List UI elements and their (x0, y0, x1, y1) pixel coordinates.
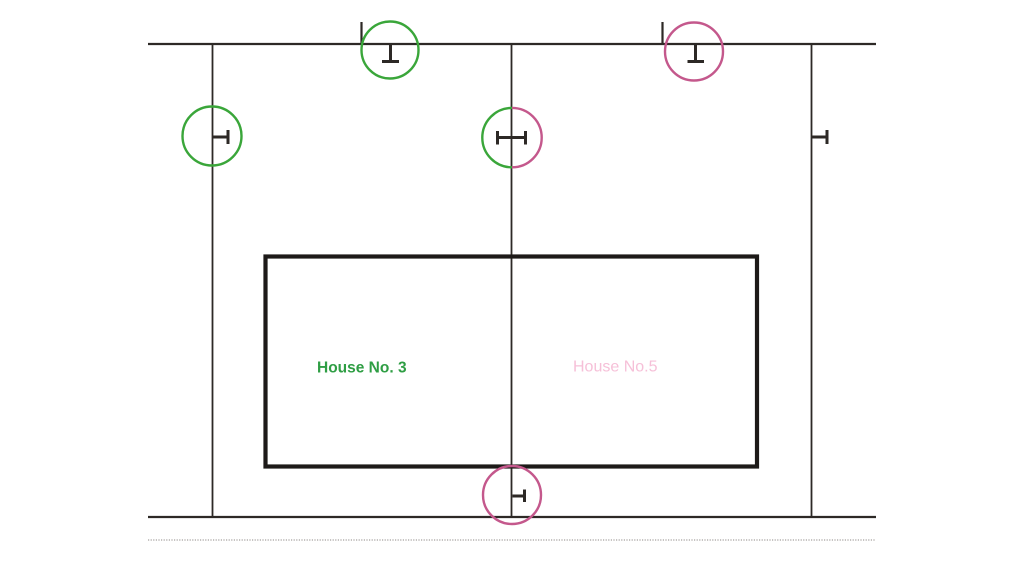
svg-text:House No. 3: House No. 3 (317, 360, 407, 377)
svg-text:House No.5: House No.5 (573, 359, 658, 376)
